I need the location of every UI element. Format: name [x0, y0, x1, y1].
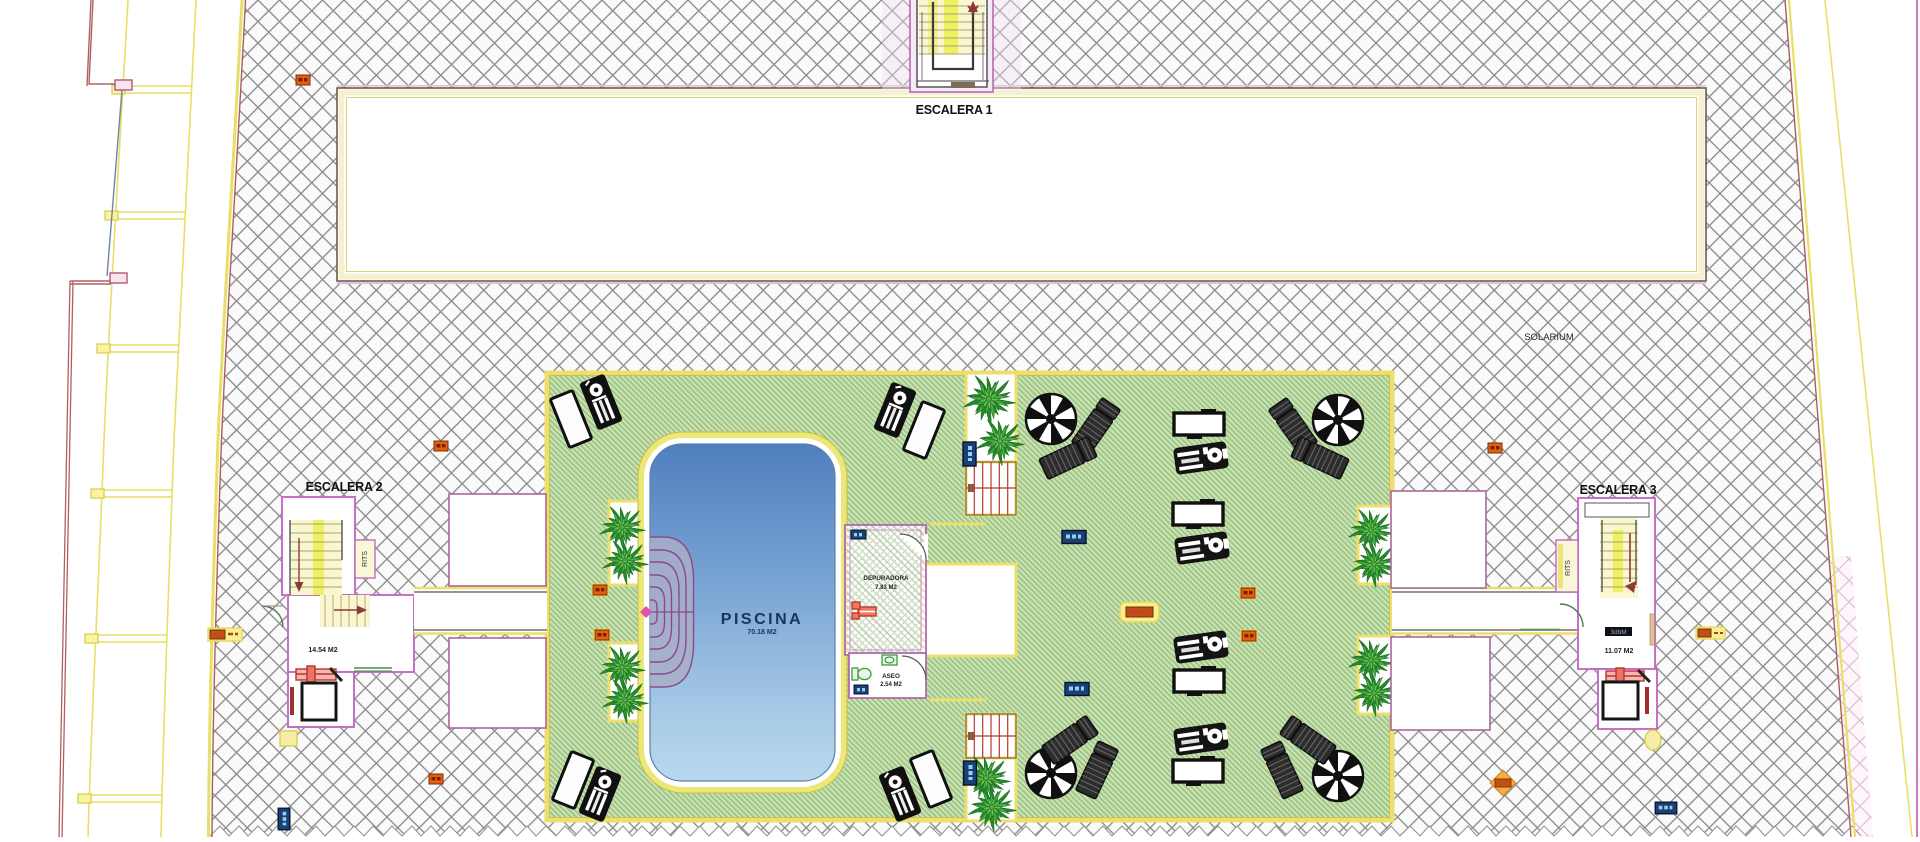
svg-text:70.18 M2: 70.18 M2 — [747, 629, 776, 636]
svg-text:ESCALERA 3: ESCALERA 3 — [1580, 483, 1657, 497]
svg-text:ASEO: ASEO — [882, 673, 900, 680]
svg-text:SOLARIUM: SOLARIUM — [1524, 332, 1574, 343]
svg-text:11.07 M2: 11.07 M2 — [1605, 648, 1634, 655]
svg-text:ESCALERA 1: ESCALERA 1 — [916, 103, 993, 117]
svg-text:DEPURADORA: DEPURADORA — [863, 575, 909, 582]
svg-text:14.54 M2: 14.54 M2 — [308, 647, 337, 654]
svg-text:3dbM: 3dbM — [1610, 629, 1626, 636]
svg-text:RITS: RITS — [362, 551, 369, 567]
svg-text:ESCALERA 2: ESCALERA 2 — [306, 480, 383, 494]
svg-text:PISCINA: PISCINA — [721, 611, 803, 628]
svg-text:RITS: RITS — [1565, 560, 1572, 576]
svg-text:2.54 M2: 2.54 M2 — [880, 682, 902, 688]
svg-text:7.83 M2: 7.83 M2 — [875, 585, 897, 591]
